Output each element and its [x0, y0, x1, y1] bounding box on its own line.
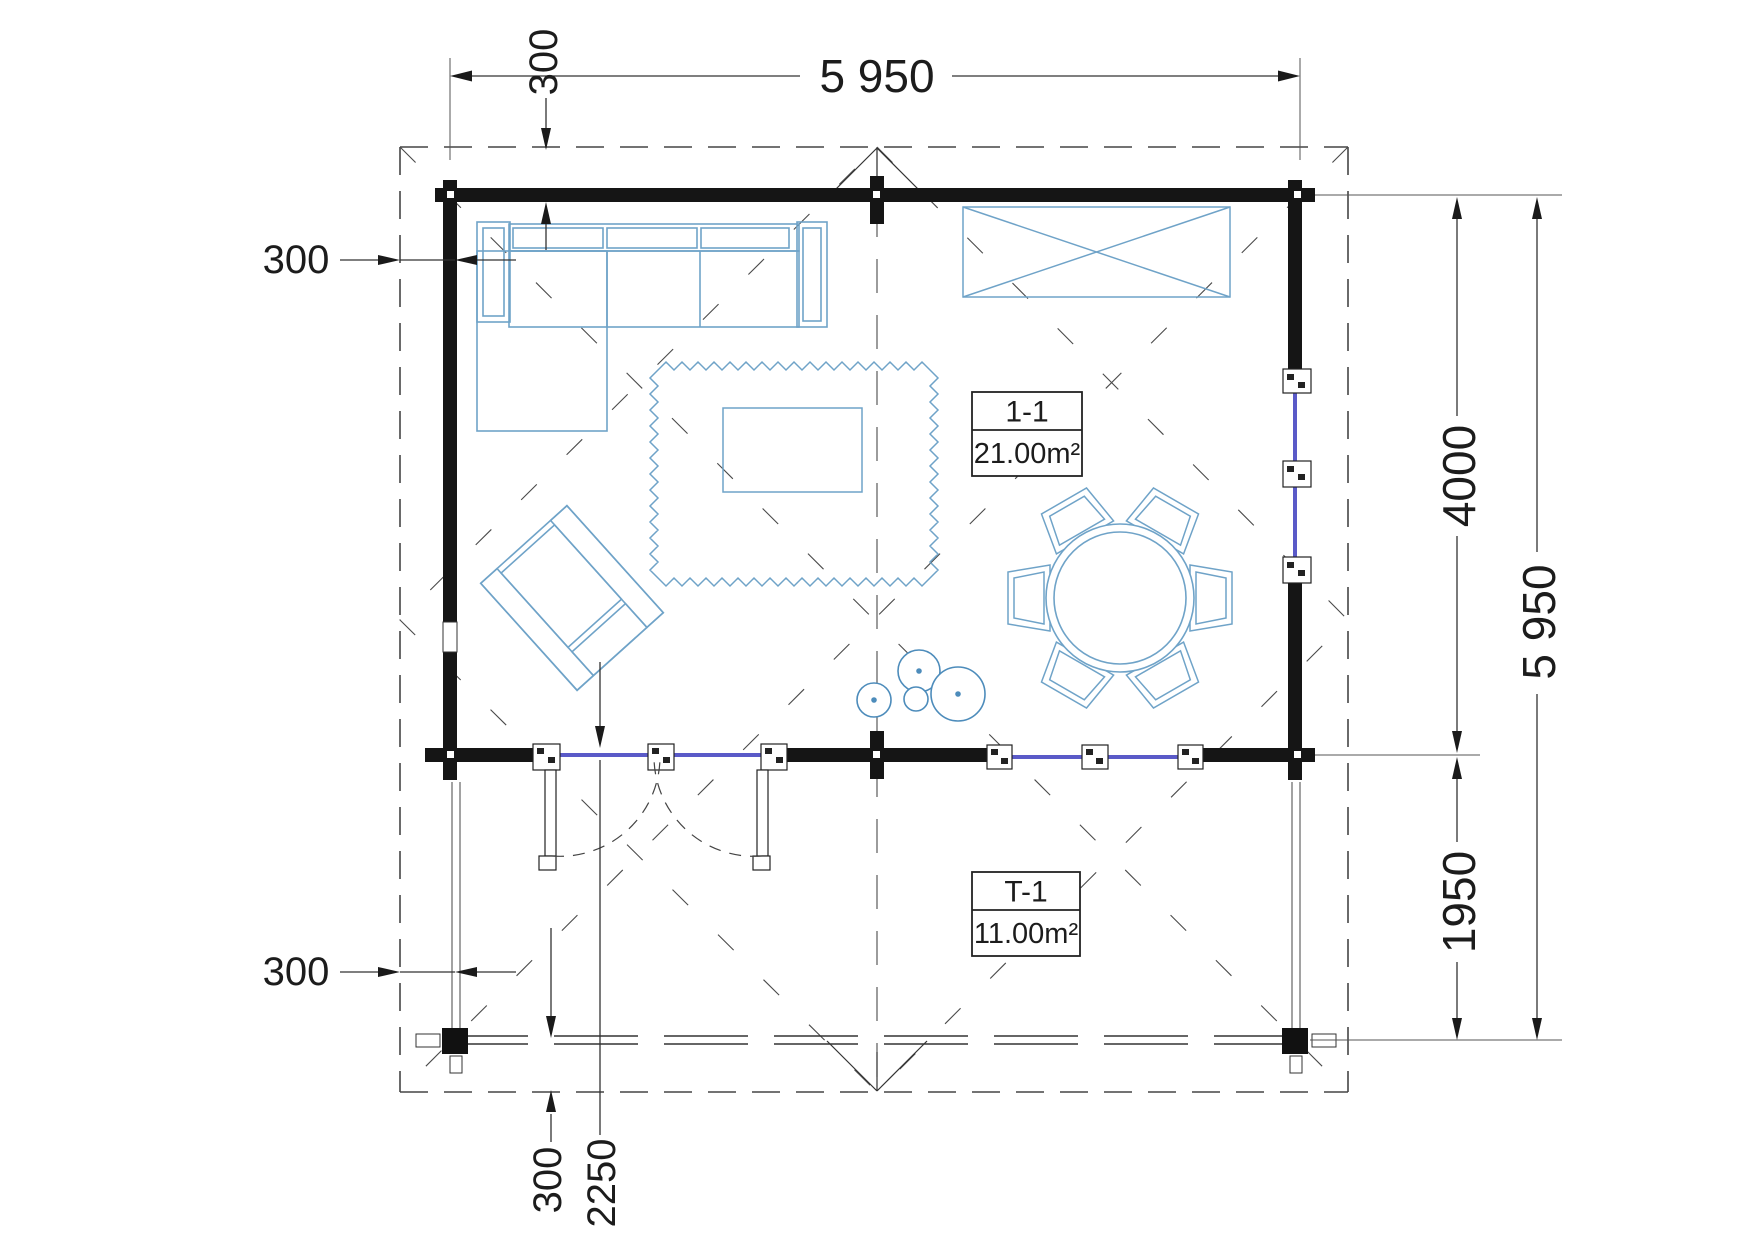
log-joint-post	[870, 176, 884, 224]
dim-top-width: 5 950	[450, 50, 1300, 102]
dining-table	[1046, 524, 1194, 672]
terrace-post	[1282, 1028, 1336, 1073]
dim-label-top-width: 5 950	[819, 50, 934, 102]
dim-label-overhang-top: 300	[522, 29, 566, 96]
dim-label-overhang-bottom: 300	[526, 1147, 570, 1214]
left-wall-vent	[443, 622, 457, 652]
dim-door-offset: 2250	[580, 662, 624, 1227]
sideboard	[963, 207, 1230, 297]
room-terrace-code: T-1	[1004, 876, 1047, 909]
dim-overhang-left: 300	[263, 238, 516, 282]
room-terrace-area: 11.00m²	[974, 918, 1079, 950]
dim-label-terrace-depth: 1950	[1433, 851, 1485, 953]
floor-plan-page: 5 950 300 300	[0, 0, 1755, 1240]
dim-main-depth: 4000	[1433, 197, 1485, 753]
room-main-area: 21.00m²	[974, 438, 1081, 470]
dim-label-total-depth: 5 950	[1513, 564, 1565, 679]
window-bottom	[987, 745, 1203, 769]
armchair	[481, 506, 664, 691]
terrace-post	[416, 1028, 468, 1073]
dim-overhang-top: 300	[522, 29, 566, 250]
dim-overhang-bottom-left: 300	[263, 950, 516, 994]
sofa	[477, 222, 827, 431]
rug	[650, 362, 938, 586]
rug-zigzag-border	[650, 362, 938, 586]
double-door	[533, 744, 787, 870]
dim-overhang-bottom: 300	[526, 928, 570, 1213]
plants	[857, 650, 985, 721]
floor-plan-drawing: 5 950 300 300	[0, 0, 1755, 1240]
room-label-terrace: T-1 11.00m²	[972, 872, 1080, 956]
window-right	[1283, 369, 1311, 583]
dim-total-depth: 5 950	[1513, 197, 1565, 1040]
dim-label-overhang-left: 300	[263, 238, 330, 282]
dim-label-overhang-bottom-left: 300	[263, 950, 330, 994]
dim-terrace-depth: 1950	[1433, 757, 1485, 1040]
dim-label-main-depth: 4000	[1433, 425, 1485, 527]
room-main-code: 1-1	[1005, 396, 1048, 429]
room-label-main: 1-1 21.00m²	[972, 392, 1082, 476]
dining-table-group	[1008, 485, 1232, 712]
dim-label-door-offset: 2250	[580, 1139, 624, 1228]
